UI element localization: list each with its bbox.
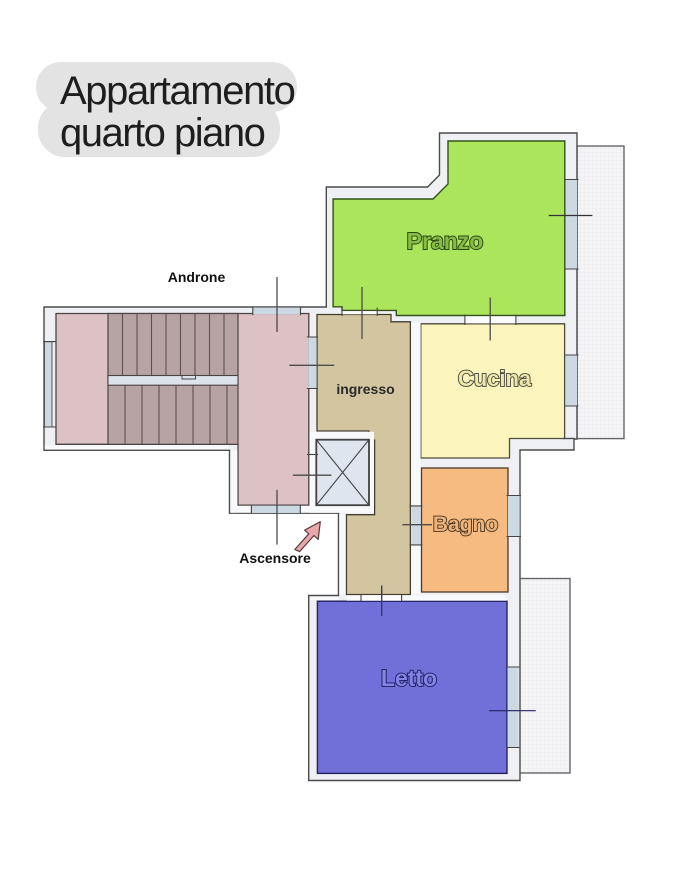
svg-text:Ascensore: Ascensore — [239, 550, 311, 566]
svg-text:Bagno: Bagno — [433, 513, 498, 536]
svg-text:Pranzo: Pranzo — [407, 228, 484, 254]
svg-text:Letto: Letto — [381, 665, 437, 691]
svg-text:ingresso: ingresso — [336, 381, 394, 397]
svg-text:Cucina: Cucina — [458, 366, 532, 391]
svg-text:Appartamento: Appartamento — [60, 69, 295, 113]
svg-text:quarto piano: quarto piano — [60, 111, 265, 155]
svg-text:Androne: Androne — [168, 269, 226, 285]
